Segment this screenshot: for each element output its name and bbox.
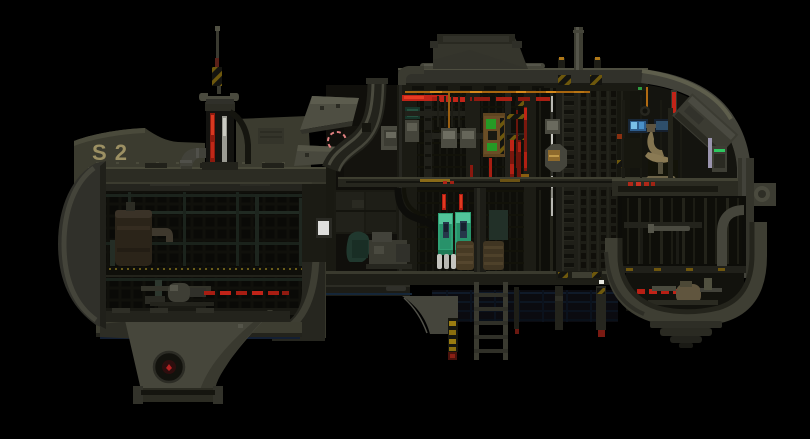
- svg-text:S 2: S 2: [92, 140, 128, 165]
